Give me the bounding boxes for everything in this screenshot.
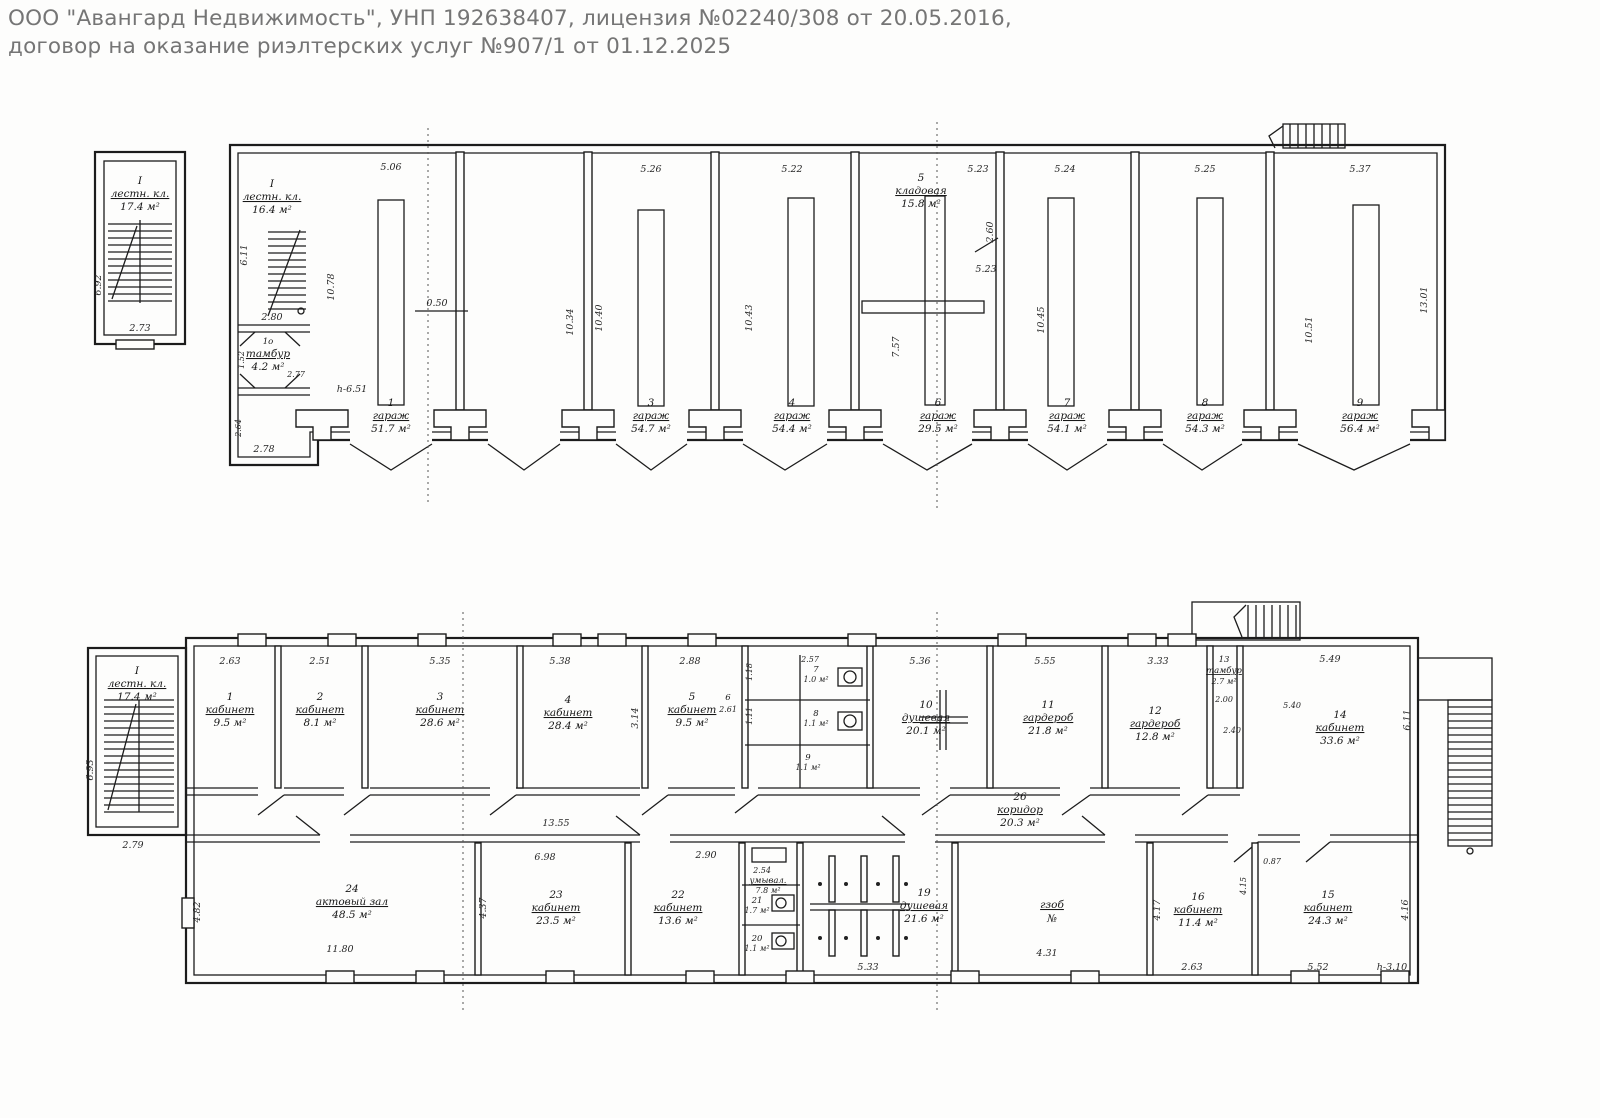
dim-lower-stair-h: 6.93 [85,759,96,780]
room-r13-number: 13 [1219,655,1230,665]
shower-room-grid [810,856,910,956]
room-r8-area: 1.1 м² [803,719,828,728]
room-r17-name: гзоб [1040,899,1064,911]
room-r10-number: 10 [919,699,933,711]
room-r19-number: 19 [917,887,931,899]
lower-plan: I лестн. кл. 17.4 м² 2.79 6.93 [85,602,1492,1010]
dim-corridor: 13.55 [542,818,569,829]
lower-entrance-stair [1192,602,1300,640]
dim-tambour-w: 2.77 [286,370,306,379]
room-g3-area: 54.7 м² [631,423,671,435]
tambour-name: тамбур [246,348,290,360]
room-label-storeroom-5: 5 кладовая 15.8 м² [895,172,947,210]
room-r9-area: 1.1 м² [795,763,820,772]
annex-stair-name: лестн. кл. [243,191,302,203]
upper-stair-area: 17.4 м² [120,201,160,213]
dim-r1-w: 2.63 [218,656,240,667]
upper-detached-stairwell: I лестн. кл. 17.4 м² 2.73 6.92 [93,152,185,349]
dim-wc-w: 2.57 [800,655,820,664]
room-r8-number: 8 [813,709,819,719]
room-r25-name: умывал. [748,876,786,886]
dim-store-h: 2.60 [985,221,996,243]
dim-bay2-h: 10.34 [565,308,576,335]
dim-bay4-w: 5.22 [781,164,802,175]
room-r2-name: кабинет [296,704,345,716]
dim-wc7-h: 1.18 [745,663,754,681]
room-r21-number: 21 [751,896,763,906]
upper-inspection-pits [378,196,1379,406]
dim-r10-w: 5.36 [909,656,930,667]
dim-t13-b: 2.40 [1222,726,1241,735]
room-r10-name: душевая [902,712,950,724]
dim-r4-w: 5.38 [549,656,570,667]
dim-r22-w: 2.90 [694,850,716,861]
room-r10-area: 20.1 м² [905,725,946,737]
room-r12-number: 12 [1148,705,1162,717]
room-r13-area: 2.7 м² [1210,677,1236,686]
room-r25-area: 7.8 м² [755,886,780,895]
room-r21-area: 1.7 м² [744,906,769,915]
dim-right-h: 13.01 [1419,286,1430,313]
dim-wash: 2.54 [752,866,771,875]
dim-r16-h: 4.17 [1152,898,1163,921]
room-r5-area: 9.5 м² [676,717,709,729]
dim-r12-w: 3.33 [1147,656,1168,667]
washroom-block: 2.54 умывал. 7.8 м² 21 1.7 м² 20 1.1 м² [742,848,800,953]
room-r22-name: кабинет [654,902,703,914]
upper-plan: I лестн. кл. 17.4 м² 2.73 6.92 I лестн. … [93,122,1445,508]
dim-stair-width: 2.73 [128,323,150,334]
room-r11-number: 11 [1041,699,1054,711]
room-r22-area: 13.6 м² [658,915,698,927]
upper-top-dims: 5.06 5.26 5.22 5.23 5.24 5.25 5.37 [380,162,1371,175]
room-g9-name: гараж [1342,410,1379,422]
dim-p087: 0.87 [1263,857,1282,866]
dim-bay5-w: 5.23 [967,164,988,175]
tambour-number: 1о [263,337,274,347]
room-g7-number: 7 [1064,397,1071,409]
room-r26-number: 26 [1012,791,1027,803]
room-k5-area: 15.8 м² [901,198,941,210]
dim-bay3-w: 5.26 [640,164,661,175]
fire-escape-ladder [1418,658,1492,854]
upper-gates [350,429,1410,470]
dim-bay8-w: 5.25 [1194,164,1215,175]
dim-r6: 2.61 [718,705,737,714]
dim-r5-w: 2.88 [678,656,700,667]
room-r14-name: кабинет [1316,722,1365,734]
dim-ceiling-height: h-6.51 [337,384,367,395]
room-r19-area: 21.6 м² [903,913,944,925]
room-r3-area: 28.6 м² [419,717,460,729]
dim-p540: 5.40 [1283,701,1301,710]
upper-vertical-dims: 10.34 10.40 10.43 7.57 10.45 10.51 13.01… [415,221,1430,357]
room-r15-area: 24.3 м² [1307,915,1348,927]
dim-bay9-h: 10.51 [1304,316,1315,343]
room-r13-name: тамбур [1206,665,1242,676]
upper-stair-number: I [137,175,143,187]
room-g7-name: гараж [1049,410,1086,422]
floor-plans-drawing: I лестн. кл. 17.4 м² 2.73 6.92 I лестн. … [0,0,1600,1118]
lower-stair-area: 17.4 м² [117,691,157,703]
tambour-area: 4.2 м² [251,361,285,373]
dim-ceiling-lower: h-3.10 [1377,962,1407,973]
dim-r23-w: 6.98 [534,852,555,863]
room-r1-name: кабинет [206,704,255,716]
dim-annex-left-h: 6.11 [239,244,250,265]
room-r20-area: 1.1 м² [744,944,769,953]
room-r24-number: 24 [344,883,358,895]
room-g8-area: 54.3 м² [1185,423,1225,435]
room-r26-area: 20.3 м² [999,817,1040,829]
dim-r45: 3.14 [630,707,641,728]
room-g7-area: 54.1 м² [1047,423,1087,435]
dim-bay3-h: 10.40 [594,304,605,331]
dim-hall-h: 4.82 [192,901,203,923]
dim-r3-w: 5.35 [429,656,450,667]
room-r14-area: 33.6 м² [1320,735,1360,747]
dim-annex-width: 2.80 [260,312,282,323]
dim-r11-w: 5.55 [1034,656,1055,667]
upper-stair-name: лестн. кл. [111,188,170,200]
room-r23-number: 23 [548,889,563,901]
room-g9-area: 56.4 м² [1340,423,1380,435]
room-r15-name: кабинет [1304,902,1353,914]
room-k5-name: кладовая [895,185,947,197]
room-r14-number: 14 [1333,709,1346,721]
room-g1-name: гараж [373,410,410,422]
room-r3-name: кабинет [416,704,465,716]
lower-stair-name: лестн. кл. [108,678,167,690]
room-g4-number: 4 [788,397,796,409]
dim-pit-offset: 0.50 [426,298,447,309]
corridor-label: 26 коридор 20.3 м² 13.55 [542,791,1043,829]
room-k5-number: 5 [918,172,925,184]
dim-stair-height: 6.92 [93,274,104,295]
lower-stair-number: I [134,665,140,677]
dim-r15-w: 5.52 [1307,962,1328,973]
dim-p415: 4.15 [1239,877,1248,896]
dim-tambour-h: 1.52 [237,351,246,369]
dim-bay4-h: 10.43 [744,304,755,331]
room-g6-number: 6 [935,397,942,409]
room-g1-number: 1 [388,397,395,409]
annex-stair-number: I [269,178,275,190]
room-r19-name: душевая [900,900,948,912]
room-g8-number: 8 [1202,397,1209,409]
dim-annex-bottom: 2.78 [252,444,274,455]
dim-bay1-h: 10.78 [326,273,337,300]
room-r5-number: 5 [689,691,696,703]
room-g6-area: 29.5 м² [917,423,958,435]
scanned-floorplan-document: ООО "Авангард Недвижимость", УНП 1926384… [0,0,1600,1118]
dim-hall-b: 11.80 [326,944,353,955]
room-g8-name: гараж [1187,410,1224,422]
room-r7-area: 1.0 м² [803,675,828,684]
room-g3-name: гараж [633,410,670,422]
room-g4-area: 54.4 м² [772,423,812,435]
dim-r19-w: 5.33 [857,962,878,973]
dim-r16-w: 2.63 [1180,962,1202,973]
dim-bay7-w: 5.24 [1054,164,1075,175]
dim-lower-stair-w: 2.79 [121,840,143,851]
room-r15-number: 15 [1321,889,1335,901]
dim-bay5-h: 7.57 [891,335,902,357]
room-r16-name: кабинет [1174,904,1223,916]
room-g4-name: гараж [774,410,811,422]
room-r23-area: 23.5 м² [535,915,576,927]
dim-annex-bottom-h: 2.64 [234,419,243,438]
room-r5-name: кабинет [668,704,717,716]
dim-bay1-w: 5.06 [380,162,401,173]
room-r22-number: 22 [670,889,685,901]
room-r9-number: 9 [805,753,811,763]
room-r23-name: кабинет [532,902,581,914]
room-r7-number: 7 [813,665,819,675]
room-g6-name: гараж [920,410,957,422]
room-r1-number: 1 [227,691,234,703]
upper-bay-walls [296,152,1445,440]
room-g9-number: 9 [1357,397,1364,409]
dim-bay9-w: 5.37 [1349,164,1371,175]
room-r3-number: 3 [437,691,444,703]
room-g1-area: 51.7 м² [371,423,411,435]
dim-r14-w: 5.49 [1319,654,1340,665]
room-r16-area: 11.4 м² [1178,917,1218,929]
dim-r14-h: 6.11 [1402,709,1413,730]
lower-stairwell: I лестн. кл. 17.4 м² 2.79 6.93 [85,648,186,851]
annex-stair-area: 16.4 м² [252,204,292,216]
dim-r23-h: 4.37 [478,896,489,919]
dim-wc8-h: 1.11 [745,707,754,725]
room-r16-number: 16 [1191,891,1205,903]
room-r12-area: 12.8 м² [1135,731,1175,743]
room-r24-name: актовый зал [316,896,388,908]
room-g3-number: 3 [648,397,655,409]
room-r11-area: 21.8 м² [1027,725,1068,737]
room-r12-name: гардероб [1130,718,1181,730]
room-r2-number: 2 [316,691,324,703]
room-r26-name: коридор [997,804,1043,816]
dim-bay7-h: 10.45 [1036,306,1047,333]
dim-t13-a: 2.00 [1214,695,1233,704]
room-r2-area: 8.1 м² [304,717,337,729]
dim-r2-w: 2.51 [308,656,330,667]
dim-store-door: 5.23 [975,264,996,275]
room-r4-name: кабинет [544,707,593,719]
dim-r17-w: 4.31 [1035,948,1057,959]
room-r6-number: 6 [725,693,731,703]
room-r1-area: 9.5 м² [214,717,247,729]
room-r20-number: 20 [751,934,763,944]
room-r4-area: 28.4 м² [547,720,588,732]
room-r17-area: № [1046,913,1057,925]
dim-r15-h: 4.16 [1400,899,1411,921]
room-r24-area: 48.5 м² [331,909,372,921]
room-r11-name: гардероб [1023,712,1074,724]
room-r4-number: 4 [564,694,572,706]
